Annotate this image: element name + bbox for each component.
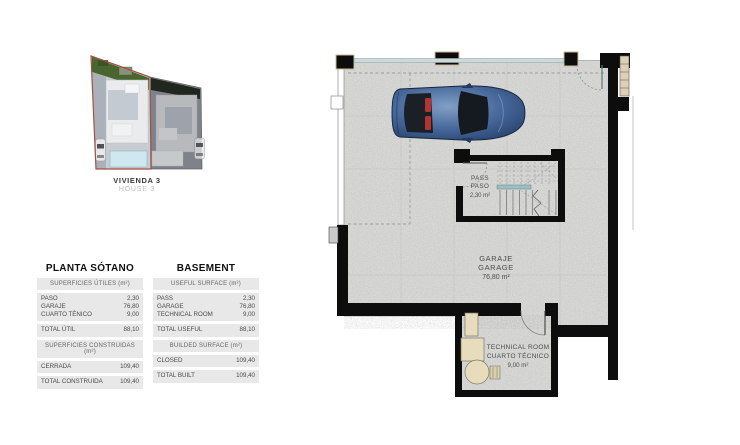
table-row: PASO2,30 bbox=[41, 295, 139, 303]
pump-unit bbox=[490, 366, 500, 379]
garage-label: GARAJE bbox=[479, 254, 513, 263]
useful-rows-es: PASO2,30 GARAJE76,80 CUARTO TÉNICO9,00 bbox=[37, 293, 143, 321]
table-row: TECHNICAL ROOM9,00 bbox=[157, 311, 255, 319]
house-footprint bbox=[106, 80, 148, 143]
useful-rows-en: PASS2,30 GARAGE76,80 TECHNICAL ROOM9,00 bbox=[153, 293, 259, 321]
plot-house3 bbox=[91, 56, 151, 169]
built-header-en: BUILDED SURFACE (m²) bbox=[153, 340, 259, 352]
useful-header-en: USEFUL SURFACE (m²) bbox=[153, 278, 259, 290]
table-row: CUARTO TÉNICO9,00 bbox=[41, 311, 139, 319]
built-header-es: SUPERFICIES CONSTRUIDAS (m²) bbox=[37, 340, 143, 358]
stair-handrail bbox=[497, 185, 531, 189]
total-useful-en: TOTAL USEFUL88,10 bbox=[153, 324, 259, 337]
basement-floor-plan: PASS PASO 2,30 m² GARAJE GARAGE 76,80 m²… bbox=[322, 38, 644, 410]
basement-plan-sheet: VIVIENDA 3 HOUSE 3 PLANTA SÓTANO SUPERFI… bbox=[0, 0, 740, 445]
svg-text:PASO: PASO bbox=[471, 183, 490, 190]
site-caption: VIVIENDA 3 HOUSE 3 bbox=[82, 176, 192, 193]
surface-table-spanish: PLANTA SÓTANO SUPERFICIES ÚTILES (m²) PA… bbox=[37, 263, 143, 392]
table-row: GARAGE76,80 bbox=[157, 303, 255, 311]
parked-car bbox=[96, 139, 106, 161]
surface-table-english: BASEMENT USEFUL SURFACE (m²) PASS2,30 GA… bbox=[153, 263, 259, 386]
car-seat bbox=[425, 116, 431, 130]
retaining-hatch bbox=[620, 56, 629, 96]
technical-room-label: TECHNICAL ROOM bbox=[487, 344, 550, 351]
table-title-en: BASEMENT bbox=[153, 263, 259, 274]
total-built-es: TOTAL CONSTRUIDA109,40 bbox=[37, 376, 143, 389]
svg-text:76,80 m²: 76,80 m² bbox=[482, 274, 510, 281]
svg-text:GARAGE: GARAGE bbox=[478, 263, 514, 272]
table-row: PASS2,30 bbox=[157, 295, 255, 303]
svg-text:CUARTO TÉCNICO: CUARTO TÉCNICO bbox=[487, 351, 549, 360]
pool bbox=[110, 151, 147, 167]
table-title-es: PLANTA SÓTANO bbox=[37, 263, 143, 274]
boiler-tank bbox=[465, 360, 489, 384]
plot-neighbor bbox=[150, 77, 205, 169]
total-useful-es: TOTAL ÚTIL88,10 bbox=[37, 324, 143, 337]
table-row: GARAJE76,80 bbox=[41, 303, 139, 311]
pillar bbox=[336, 55, 354, 69]
site-name-en: HOUSE 3 bbox=[82, 186, 192, 193]
total-built-en: TOTAL BUILT109,40 bbox=[153, 370, 259, 383]
svg-text:2,30 m²: 2,30 m² bbox=[470, 193, 490, 199]
wall-niche bbox=[331, 96, 343, 109]
pass-label: PASS bbox=[471, 175, 489, 182]
water-heater bbox=[465, 313, 478, 336]
car-seat bbox=[425, 98, 431, 112]
site-plan-thumbnail bbox=[85, 50, 207, 175]
closed-row-es: CERRADA109,40 bbox=[37, 361, 143, 374]
car-windshield bbox=[458, 91, 489, 135]
site-name-es: VIVIENDA 3 bbox=[82, 176, 192, 185]
svg-text:9,00 m²: 9,00 m² bbox=[508, 362, 529, 369]
car-top-view bbox=[392, 83, 525, 143]
closed-row-en: CLOSED109,40 bbox=[153, 355, 259, 368]
step-hatch bbox=[329, 227, 338, 243]
equipment-box bbox=[461, 338, 484, 361]
useful-header-es: SUPERFICIES ÚTILES (m²) bbox=[37, 278, 143, 290]
pillar bbox=[564, 52, 578, 66]
glazing-band bbox=[354, 59, 564, 63]
